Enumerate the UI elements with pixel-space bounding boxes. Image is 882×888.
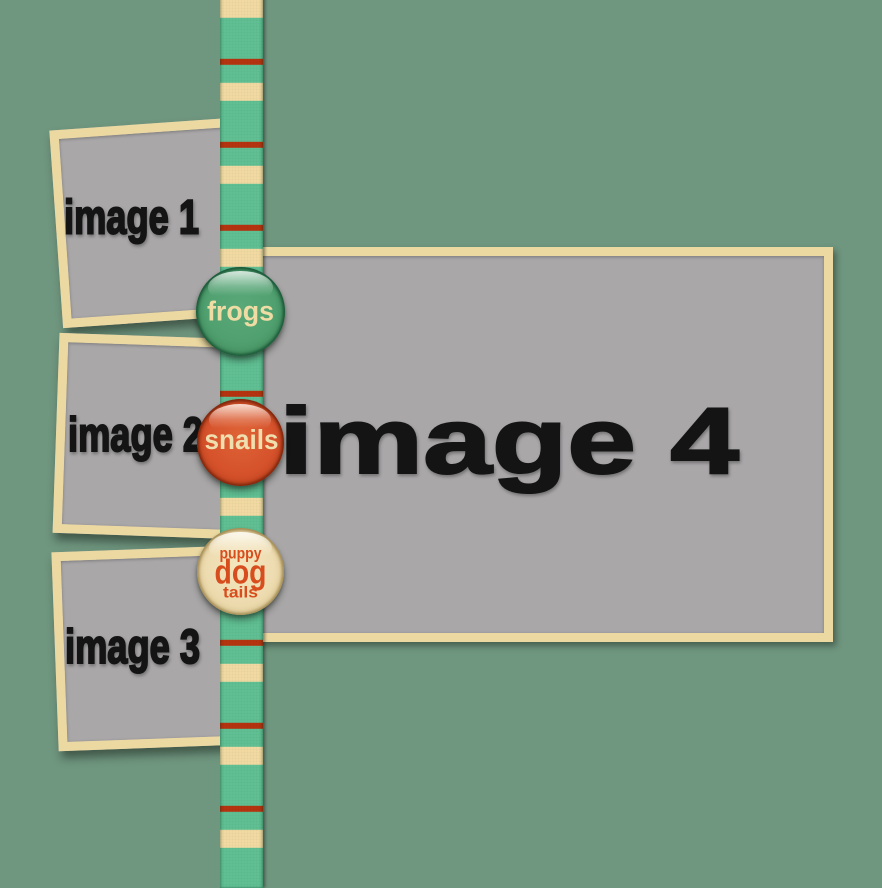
svg-text:frogs: frogs (207, 295, 274, 326)
svg-text:image 4: image 4 (279, 388, 739, 493)
svg-text:snails: snails (204, 424, 278, 455)
svg-text:image 3: image 3 (65, 621, 200, 674)
svg-text:image 1: image 1 (64, 192, 199, 245)
svg-text:tails: tails (223, 584, 258, 601)
svg-text:image 2: image 2 (68, 409, 203, 462)
